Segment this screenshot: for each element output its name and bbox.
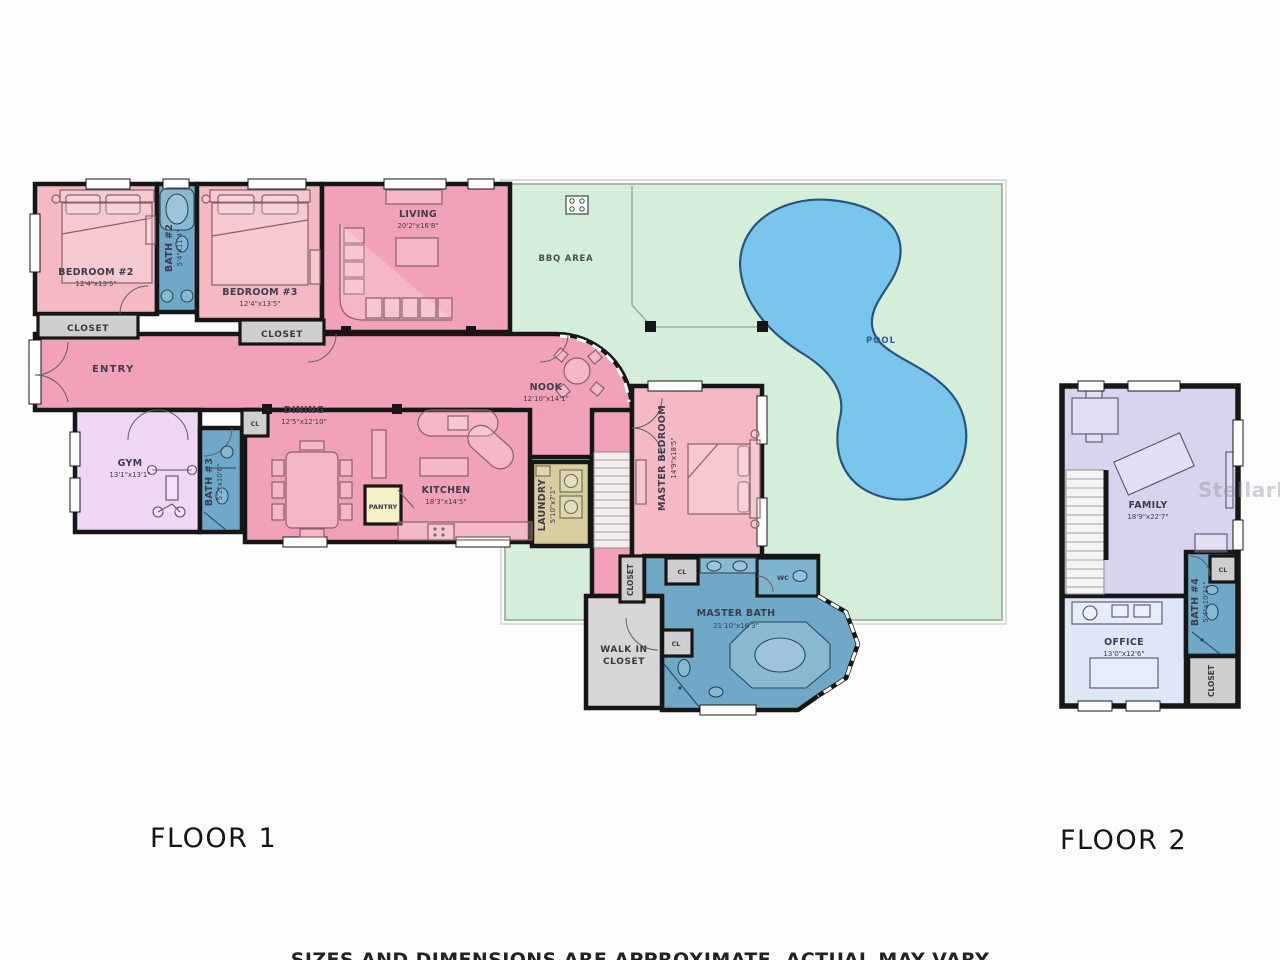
floorplan-page: POOL BBQ AREA — [0, 0, 1280, 960]
cl-top-label: CL — [678, 568, 687, 576]
stairs-floor2 — [1066, 470, 1106, 594]
entry-label: ENTRY — [92, 364, 134, 375]
bath2-label: BATH #2 — [164, 224, 175, 272]
walkin-closet-label-1: WALK IN — [600, 645, 647, 655]
bath4-label: BATH #4 — [1190, 578, 1201, 626]
bedroom2-label: BEDROOM #2 — [58, 267, 133, 278]
gym-label: GYM — [118, 458, 143, 469]
lanai-post — [645, 321, 656, 332]
bbq-area-label: BBQ AREA — [538, 254, 593, 264]
wall-post — [392, 404, 402, 414]
wall-post — [341, 326, 351, 336]
bedroom3-label: BEDROOM #3 — [222, 287, 297, 298]
cl-floor2-label: CL — [1219, 566, 1228, 574]
laundry-label: LAUNDRY — [537, 479, 548, 531]
family-dims: 18'9"x22'7" — [1127, 513, 1168, 521]
master-bath-dims: 21'10"x16'3" — [713, 622, 759, 630]
bed-icon — [202, 190, 320, 285]
dining-label: DINING — [284, 405, 324, 416]
closet-bed3-label: CLOSET — [261, 330, 303, 340]
office-label: OFFICE — [1104, 637, 1144, 648]
bath3-dims: 5'2"x10'6" — [216, 464, 224, 501]
bath4-dims: 5'4"x10'11" — [1202, 581, 1210, 622]
bedroom3-dims: 12'4"x13'5" — [239, 300, 280, 308]
stairs-floor1 — [594, 452, 630, 548]
cl-hall-label: CL — [251, 420, 260, 428]
laundry-dims: 5'10"x7'1" — [549, 487, 557, 524]
closet-floor2-label: CLOSET — [1207, 664, 1216, 697]
cl-mid-label: CL — [672, 640, 681, 648]
watermark: StellarMLS — [1198, 478, 1280, 502]
nook-label: NOOK — [530, 382, 563, 393]
nook-dims: 12'10"x14'1" — [523, 395, 569, 403]
bedroom2-dims: 12'4"x13'5" — [75, 280, 116, 288]
master-bedroom-dims: 14'9"x18'5" — [670, 437, 678, 478]
floorplan-canvas: POOL BBQ AREA — [0, 0, 1280, 960]
closet-bed2-label: CLOSET — [67, 324, 109, 334]
grill-icon — [566, 196, 588, 214]
walkin-closet-label-2: CLOSET — [603, 657, 645, 667]
lanai-post — [757, 321, 768, 332]
pantry-label: PANTRY — [369, 503, 398, 511]
floor2-title: FLOOR 2 — [1060, 825, 1187, 856]
living-dims: 20'2"x16'8" — [397, 222, 438, 230]
family-label: FAMILY — [1129, 500, 1168, 511]
disclaimer-text: SIZES AND DIMENSIONS ARE APPROXIMATE, AC… — [291, 949, 989, 960]
kitchen-label: KITCHEN — [422, 485, 471, 496]
living-label: LIVING — [399, 209, 437, 220]
wall-post — [262, 404, 272, 414]
master-bath-label: MASTER BATH — [697, 608, 776, 619]
wall-post — [466, 326, 476, 336]
bath3-label: BATH #3 — [204, 458, 215, 506]
hall-closet-label: CLOSET — [626, 563, 635, 596]
master-bedroom-label: MASTER BEDROOM — [657, 405, 668, 511]
kitchen-dims: 18'3"x14'5" — [425, 498, 466, 506]
bath2-dims: 5'4"x11'4" — [176, 230, 184, 267]
gym-dims: 13'1"x13'1" — [109, 471, 150, 479]
floor2-plan: FAMILY 18'9"x22'7" BATH #4 5'4"x10'11" C… — [1062, 381, 1280, 711]
wc-label: WC — [777, 574, 789, 582]
floor1-plan: POOL BBQ AREA — [29, 179, 1006, 715]
dining-dims: 12'5"x12'10" — [281, 418, 327, 426]
pool-label: POOL — [866, 336, 896, 346]
floor1-title: FLOOR 1 — [150, 823, 277, 854]
office-dims: 13'0"x12'6" — [1103, 650, 1144, 658]
